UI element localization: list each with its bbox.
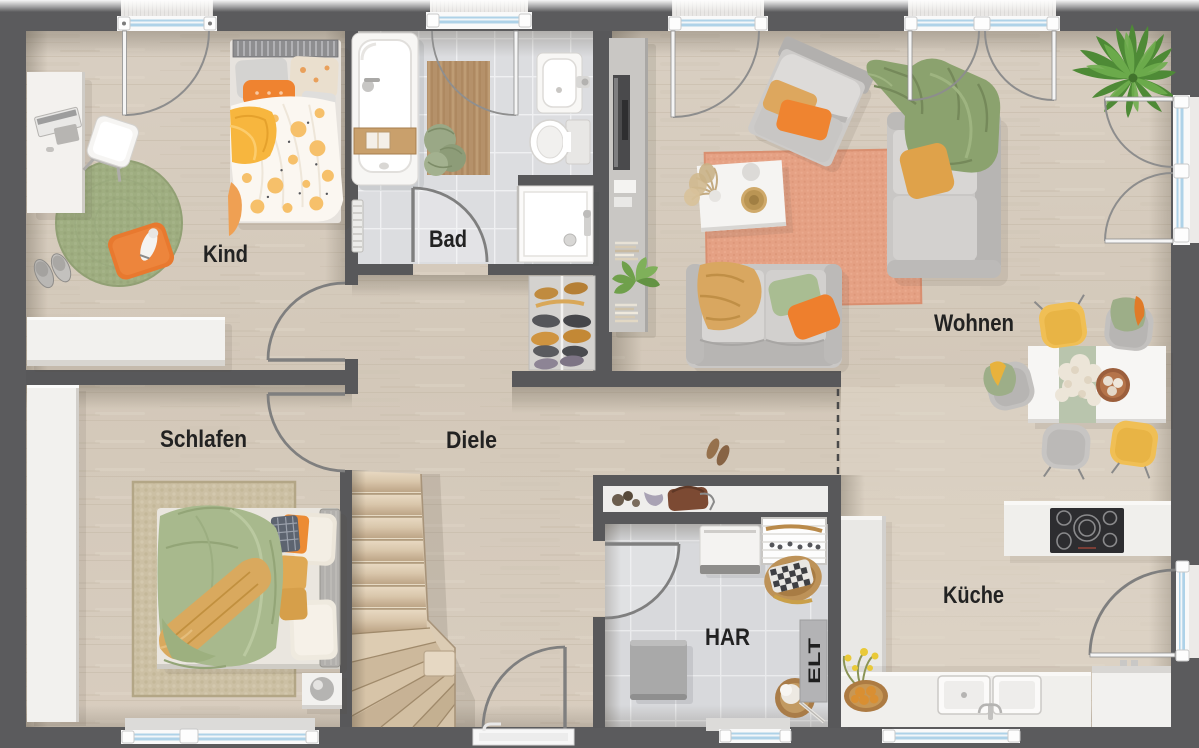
svg-text:Kind: Kind	[203, 241, 248, 268]
svg-text:HAR: HAR	[705, 624, 750, 651]
svg-text:Wohnen: Wohnen	[934, 310, 1014, 337]
svg-text:ELT: ELT	[805, 637, 824, 684]
svg-text:Küche: Küche	[943, 582, 1004, 609]
svg-text:Bad: Bad	[429, 226, 467, 253]
svg-text:Schlafen: Schlafen	[160, 426, 247, 453]
svg-text:Diele: Diele	[446, 427, 497, 454]
